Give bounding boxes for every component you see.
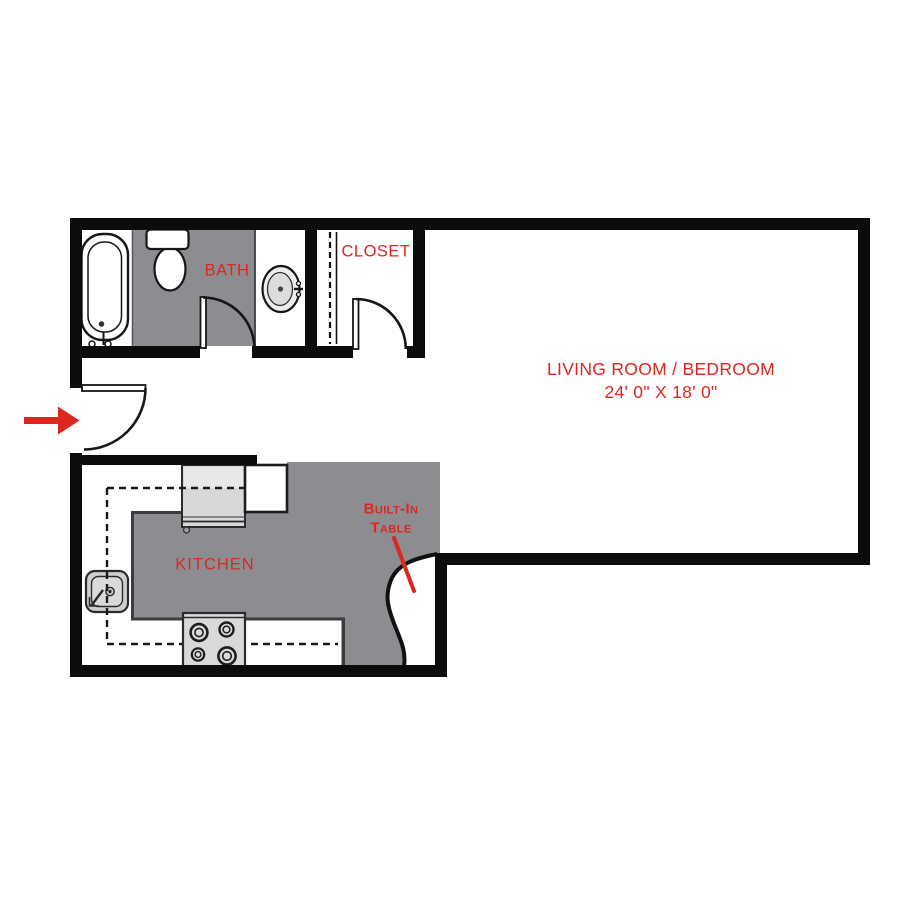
vanity-sink-icon (263, 266, 304, 312)
wall-top (70, 218, 870, 230)
wall-living-bottom (435, 553, 870, 565)
wall-left-upper (70, 218, 82, 388)
wall-kitchen-top (70, 455, 257, 465)
closet-room-label: CLOSET (341, 243, 410, 262)
cabinet-icon (245, 465, 287, 512)
bath-room-label: BATH (205, 262, 250, 281)
wall-bath-bottom (82, 346, 200, 358)
floor-plan-drawing (0, 0, 900, 900)
built-in-table-label-line2: Table (364, 519, 419, 538)
wall-closet-right (413, 230, 425, 346)
entry-door-swing-icon (82, 385, 146, 450)
living-room-label-block: LIVING ROOM / BEDROOM 24' 0" X 18' 0" (547, 358, 775, 404)
living-room-label: LIVING ROOM / BEDROOM (547, 358, 775, 381)
wall-kitchen-bottom (70, 665, 447, 677)
stove-icon (183, 613, 245, 668)
counter-edge-right (342, 618, 346, 668)
wall-right (858, 218, 870, 565)
built-in-table-label-block: Built-In Table (364, 501, 419, 538)
closet-door-swing-icon (353, 299, 406, 349)
wall-kitchen-right (435, 553, 447, 677)
wall-closet-bottom-right (407, 346, 425, 358)
built-in-table-label-line1: Built-In (364, 501, 419, 520)
floor-plan: BATH CLOSET LIVING ROOM / BEDROOM 24' 0"… (0, 0, 900, 900)
wall-bath-closet-divider (305, 230, 317, 346)
wall-left-lower (70, 453, 82, 677)
kitchen-room-label: KITCHEN (175, 556, 254, 575)
living-room-dimensions: 24' 0" X 18' 0" (547, 381, 775, 404)
entry-arrow-icon (24, 407, 80, 435)
counter-edge-left (131, 511, 134, 620)
closet-rod-icon (330, 232, 337, 344)
bathtub-icon (82, 234, 129, 347)
refrigerator-icon (182, 465, 245, 533)
wall-bath-closet-bottom (252, 346, 353, 358)
